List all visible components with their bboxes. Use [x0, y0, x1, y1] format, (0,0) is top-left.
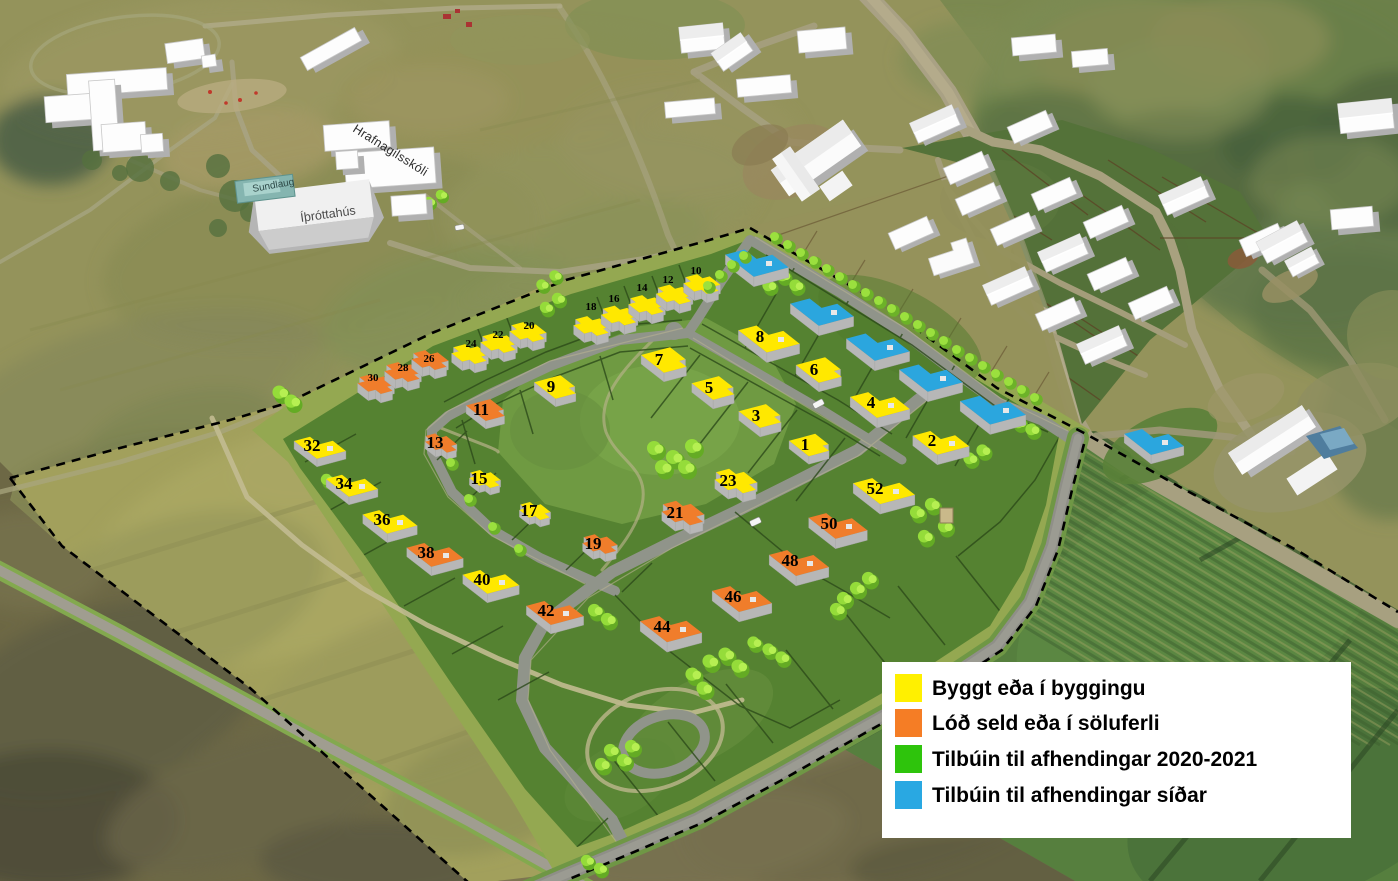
svg-text:21: 21: [667, 503, 684, 522]
svg-text:26: 26: [424, 353, 436, 365]
svg-text:46: 46: [725, 587, 742, 606]
svg-text:4: 4: [867, 393, 876, 412]
svg-text:1: 1: [801, 435, 810, 454]
svg-text:42: 42: [538, 601, 555, 620]
svg-text:34: 34: [336, 474, 354, 493]
svg-text:28: 28: [398, 362, 410, 374]
svg-text:36: 36: [374, 510, 391, 529]
svg-text:20: 20: [524, 320, 536, 332]
svg-text:5: 5: [705, 378, 714, 397]
svg-text:2: 2: [928, 431, 937, 450]
svg-text:7: 7: [655, 350, 664, 369]
svg-text:23: 23: [720, 471, 737, 490]
svg-text:19: 19: [585, 534, 602, 553]
svg-text:50: 50: [821, 514, 838, 533]
svg-text:13: 13: [427, 433, 444, 452]
svg-text:3: 3: [752, 406, 761, 425]
svg-text:52: 52: [867, 479, 884, 498]
svg-text:44: 44: [654, 617, 672, 636]
svg-text:30: 30: [368, 372, 380, 384]
svg-text:18: 18: [586, 301, 598, 313]
svg-text:15: 15: [471, 469, 488, 488]
svg-text:6: 6: [810, 360, 819, 379]
svg-text:48: 48: [782, 551, 799, 570]
svg-text:14: 14: [637, 282, 649, 294]
svg-text:Lóð seld eða í söluferli: Lóð seld eða í söluferli: [932, 712, 1160, 735]
svg-text:Tilbúin til afhendingar 2020-2: Tilbúin til afhendingar 2020-2021: [932, 748, 1258, 771]
svg-text:38: 38: [418, 543, 435, 562]
svg-text:22: 22: [493, 329, 505, 341]
svg-text:Byggt eða í byggingu: Byggt eða í byggingu: [932, 677, 1146, 700]
svg-text:24: 24: [466, 338, 478, 350]
svg-text:32: 32: [304, 436, 321, 455]
svg-text:9: 9: [547, 377, 556, 396]
svg-text:11: 11: [473, 400, 489, 419]
svg-text:40: 40: [474, 570, 491, 589]
svg-text:Tilbúin til afhendingar síðar: Tilbúin til afhendingar síðar: [932, 784, 1207, 807]
svg-text:8: 8: [756, 327, 765, 346]
svg-text:12: 12: [663, 274, 675, 286]
svg-text:17: 17: [521, 501, 539, 520]
svg-text:16: 16: [609, 293, 621, 305]
svg-text:10: 10: [691, 265, 703, 277]
